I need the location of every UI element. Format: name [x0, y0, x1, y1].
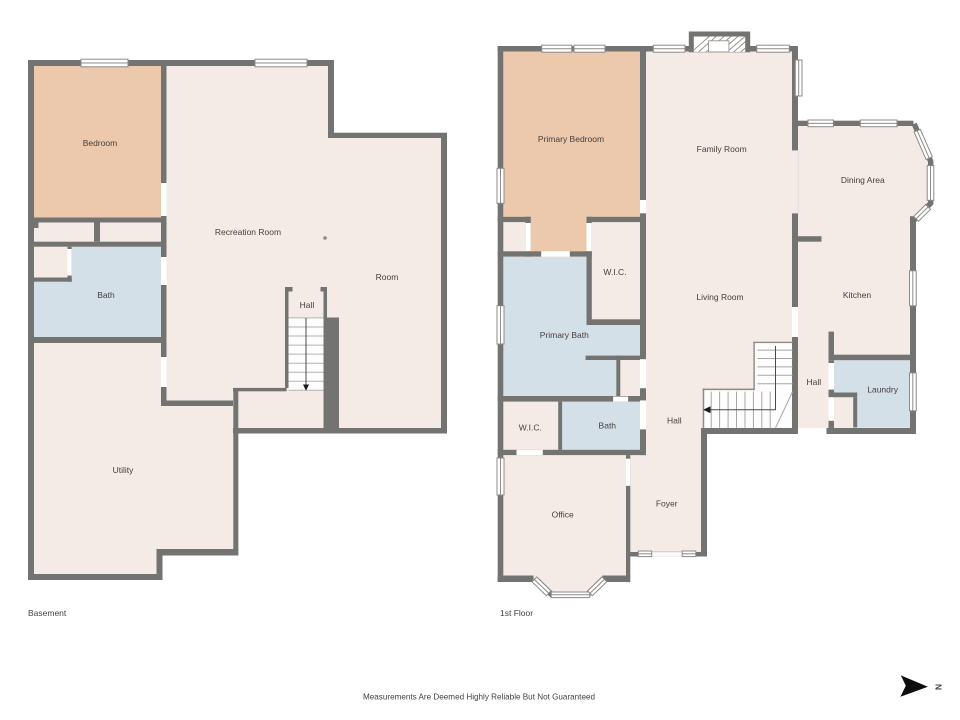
svg-text:Dining Area: Dining Area	[841, 175, 885, 185]
svg-text:Basement: Basement	[28, 608, 67, 618]
svg-text:Kitchen: Kitchen	[843, 290, 872, 300]
svg-text:1st Floor: 1st Floor	[500, 608, 533, 618]
svg-text:Bedroom: Bedroom	[83, 138, 118, 148]
svg-text:Living Room: Living Room	[696, 292, 743, 302]
svg-text:Primary Bedroom: Primary Bedroom	[538, 134, 604, 144]
svg-text:Office: Office	[552, 509, 574, 519]
svg-text:Measurements Are Deemed Highly: Measurements Are Deemed Highly Reliable …	[363, 692, 595, 702]
svg-text:Hall: Hall	[300, 300, 315, 310]
svg-text:Hall: Hall	[806, 377, 821, 387]
svg-text:Primary Bath: Primary Bath	[540, 330, 589, 340]
svg-text:Family Room: Family Room	[697, 144, 747, 154]
svg-text:Recreation Room: Recreation Room	[215, 227, 281, 237]
svg-text:W.I.C.: W.I.C.	[603, 267, 626, 277]
svg-text:N: N	[934, 684, 944, 690]
svg-text:Utility: Utility	[113, 465, 135, 475]
svg-text:W.I.C.: W.I.C.	[519, 423, 542, 433]
svg-text:Room: Room	[376, 272, 399, 282]
svg-text:Hall: Hall	[667, 416, 682, 426]
svg-text:Laundry: Laundry	[867, 385, 898, 395]
svg-text:Bath: Bath	[97, 290, 115, 300]
svg-text:Foyer: Foyer	[656, 498, 678, 508]
svg-text:Bath: Bath	[599, 421, 617, 431]
